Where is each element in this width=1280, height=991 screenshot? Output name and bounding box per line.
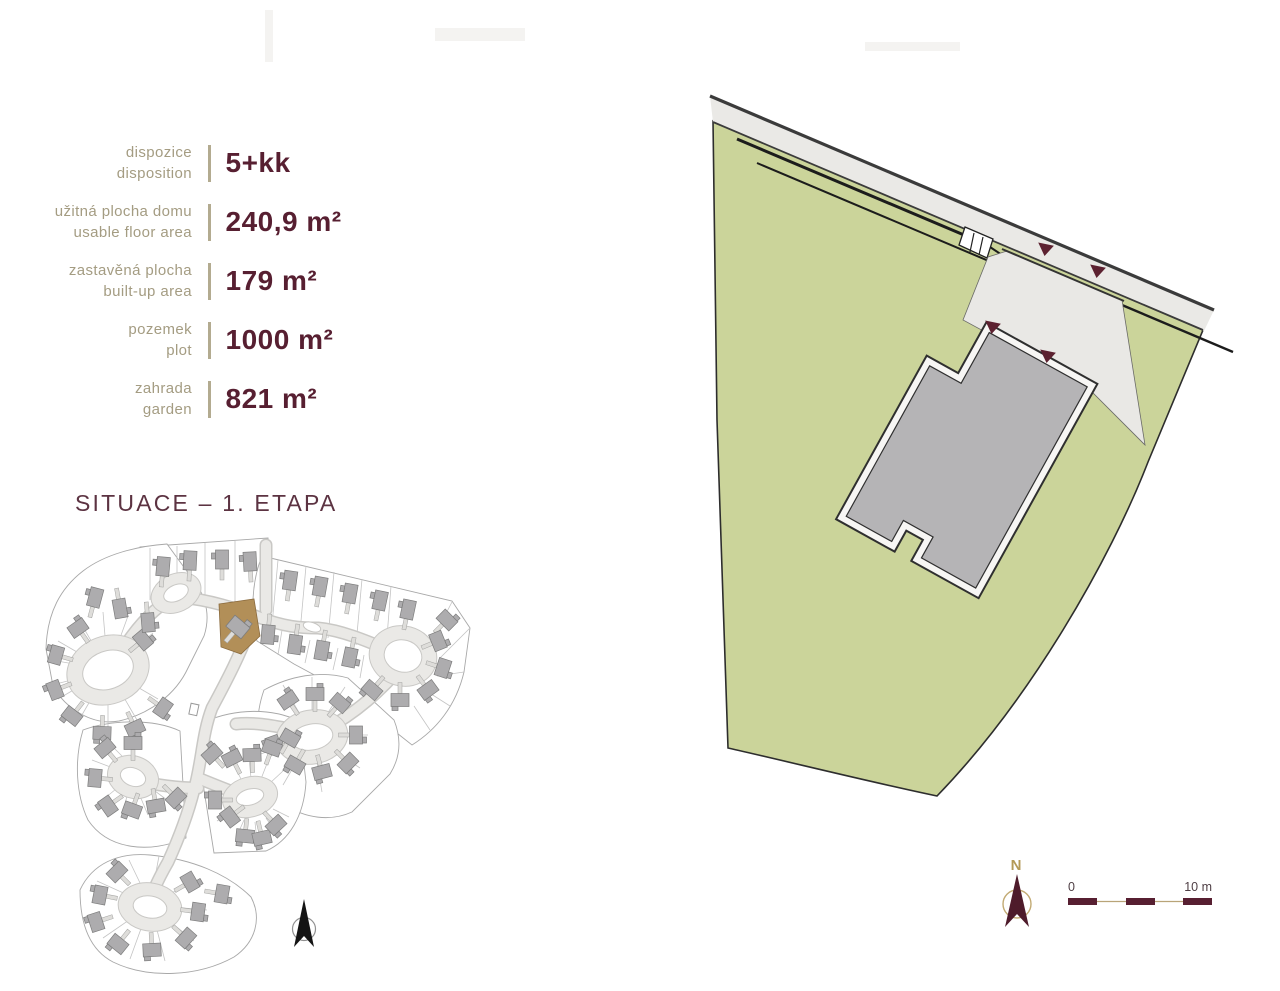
spec-label-cs: zahrada [42,378,192,399]
spec-divider [208,322,211,359]
spec-label: užitná plocha domu usable floor area [42,201,192,243]
spec-label-en: garden [42,399,192,420]
spec-value: 821 m² [226,383,318,415]
site-map [30,530,490,990]
scale-start-label: 0 [1068,880,1075,894]
scale-bar: 0 10 m [1068,880,1212,905]
spec-row-garden: zahrada garden 821 m² [42,377,372,421]
spec-divider [208,381,211,418]
spec-divider [208,145,211,182]
spec-panel: dispozice disposition 5+kk užitná plocha… [42,141,372,436]
scale-end-label: 10 m [1184,880,1212,894]
spec-label-en: disposition [42,163,192,184]
spec-divider [208,204,211,241]
site-plan-title: SITUACE – 1. ETAPA [75,490,337,517]
north-label: N [1011,857,1022,874]
faint-artifact [865,42,960,51]
spec-row-plot: pozemek plot 1000 m² [42,318,372,362]
highlighted-plot[interactable] [218,599,260,654]
spec-label-cs: zastavěná plocha [42,260,192,281]
spec-label: dispozice disposition [42,142,192,184]
spec-label-cs: užitná plocha domu [42,201,192,222]
spec-value: 5+kk [226,147,291,179]
spec-label-en: plot [42,340,192,361]
spec-divider [208,263,211,300]
spec-row-usable-area: užitná plocha domu usable floor area 240… [42,200,372,244]
spec-row-disposition: dispozice disposition 5+kk [42,141,372,185]
spec-label-cs: pozemek [42,319,192,340]
spec-value: 179 m² [226,265,318,297]
faint-artifact [435,28,525,41]
spec-label: zahrada garden [42,378,192,420]
compass: N [1003,857,1031,927]
spec-label-en: built-up area [42,281,192,302]
spec-label-en: usable floor area [42,222,192,243]
north-arrow-icon [293,899,316,947]
spec-label: zastavěná plocha built-up area [42,260,192,302]
compass-needle-icon [1005,874,1029,927]
faint-artifact [265,10,273,62]
utility-box [189,703,199,715]
spec-value: 1000 m² [226,324,334,356]
spec-row-built-up-area: zastavěná plocha built-up area 179 m² [42,259,372,303]
spec-label-cs: dispozice [42,142,192,163]
spec-value: 240,9 m² [226,206,342,238]
plot-plan: N 0 10 m [690,85,1280,960]
spec-label: pozemek plot [42,319,192,361]
